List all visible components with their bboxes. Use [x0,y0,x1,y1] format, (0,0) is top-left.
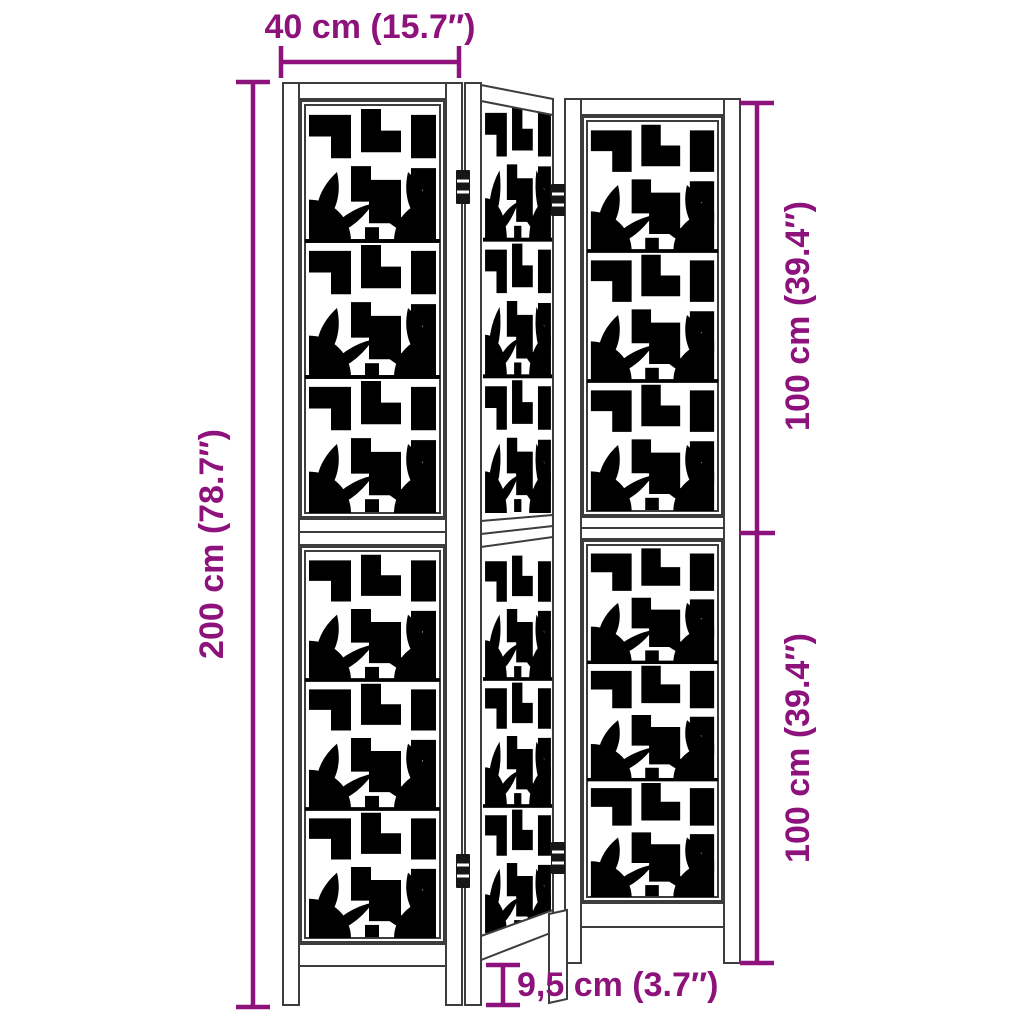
dimension-line-panel-heights [739,103,775,963]
hinge-icon-bottom-right [551,842,565,874]
panel-left [283,83,462,1005]
product-dimension-diagram: 40 cm (15.7″) 200 cm (78.7″) 100 cm (39.… [0,0,1024,1024]
hinge-icon-bottom-left [456,854,470,888]
dimension-label-lower-panel-height: 100 cm (39.4″) [781,633,815,863]
dimension-label-foot-clearance: 9,5 cm (3.7″) [517,968,719,1002]
panel-right [565,99,740,963]
dimension-line-total-height [236,82,270,1007]
dimension-label-total-height: 200 cm (78.7″) [195,429,229,659]
hinge-icon-top-left [456,170,470,204]
dimension-label-width: 40 cm (15.7″) [190,10,550,44]
dimension-line-width [281,46,459,78]
dimension-line-foot-clearance [486,965,520,1005]
hinge-icon-top-right [551,184,565,216]
dimension-label-upper-panel-height: 100 cm (39.4″) [781,201,815,431]
room-divider-line-drawing [0,0,1024,1024]
